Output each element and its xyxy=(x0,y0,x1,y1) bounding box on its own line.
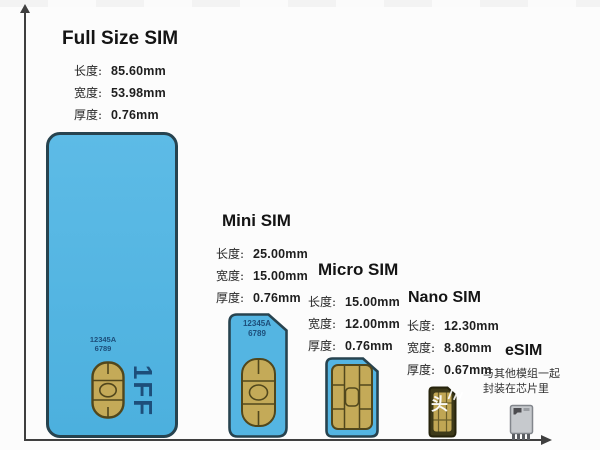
card-number: 12345A 6789 xyxy=(235,319,279,339)
spec-label: 宽度: xyxy=(308,315,345,332)
nano-sim-title: Nano SIM xyxy=(408,289,481,307)
spec-value: 15.00mm xyxy=(253,269,308,283)
spec-row: 宽度: 53.98mm xyxy=(74,84,166,101)
spec-label: 厚度: xyxy=(407,361,444,378)
spec-row: 宽度: 15.00mm xyxy=(216,267,308,284)
spec-value: 15.00mm xyxy=(345,295,400,309)
x-axis-line xyxy=(24,439,542,441)
spec-row: 长度: 12.30mm xyxy=(407,317,499,334)
micro-sim-specs: 长度: 15.00mm 宽度: 12.00mm 厚度: 0.76mm xyxy=(308,293,400,354)
spec-value: 0.76mm xyxy=(111,108,159,122)
spec-value: 0.76mm xyxy=(253,291,301,305)
micro-sim-card-shape xyxy=(325,357,379,438)
spec-label: 厚度: xyxy=(216,289,253,306)
full-size-sim-title: Full Size SIM xyxy=(62,28,178,50)
spec-value: 85.60mm xyxy=(111,64,166,78)
spec-row: 厚度: 0.76mm xyxy=(216,289,308,306)
x-axis-arrow-icon xyxy=(541,435,552,445)
watermark-rays-icon xyxy=(446,383,464,401)
spec-label: 宽度: xyxy=(407,339,444,356)
spec-row: 长度: 25.00mm xyxy=(216,245,308,262)
mini-sim-card: 12345A 6789 xyxy=(228,313,288,438)
spec-label: 厚度: xyxy=(308,337,345,354)
spec-label: 长度: xyxy=(308,293,345,310)
sim-chip-icon xyxy=(91,361,125,419)
spec-value: 0.76mm xyxy=(345,339,393,353)
esim-title: eSIM xyxy=(505,342,542,360)
esim-note: 与其他模组一起 封装在芯片里 xyxy=(483,366,569,396)
esim-chip-icon xyxy=(509,404,534,441)
micro-sim-card xyxy=(325,357,379,438)
spec-row: 宽度: 12.00mm xyxy=(308,315,400,332)
spec-label: 长度: xyxy=(74,62,111,79)
form-factor-label: 1FF xyxy=(130,359,156,423)
mini-sim-title: Mini SIM xyxy=(222,211,291,231)
spec-value: 12.30mm xyxy=(444,319,499,333)
spec-value: 8.80mm xyxy=(444,341,492,355)
y-axis-line xyxy=(24,12,26,440)
full-size-sim-card: 12345A 6789 1FF xyxy=(46,132,178,438)
spec-label: 长度: xyxy=(216,245,253,262)
spec-label: 长度: xyxy=(407,317,444,334)
spec-row: 厚度: 0.76mm xyxy=(308,337,400,354)
spec-row: 长度: 15.00mm xyxy=(308,293,400,310)
spec-label: 厚度: xyxy=(74,106,111,123)
micro-sim-title: Micro SIM xyxy=(318,260,398,280)
sim-card-size-comparison-diagram: Full Size SIM 长度: 85.60mm 宽度: 53.98mm 厚度… xyxy=(0,0,600,450)
spec-row: 厚度: 0.76mm xyxy=(74,106,166,123)
spec-label: 宽度: xyxy=(74,84,111,101)
card-number: 12345A 6789 xyxy=(77,335,129,353)
spec-label: 宽度: xyxy=(216,267,253,284)
spec-row: 宽度: 8.80mm xyxy=(407,339,499,356)
spec-value: 53.98mm xyxy=(111,86,166,100)
spec-value: 25.00mm xyxy=(253,247,308,261)
y-axis-arrow-icon xyxy=(20,4,30,13)
spec-row: 长度: 85.60mm xyxy=(74,62,166,79)
full-size-sim-specs: 长度: 85.60mm 宽度: 53.98mm 厚度: 0.76mm xyxy=(74,62,166,123)
mini-sim-specs: 长度: 25.00mm 宽度: 15.00mm 厚度: 0.76mm xyxy=(216,245,308,306)
spec-value: 12.00mm xyxy=(345,317,400,331)
